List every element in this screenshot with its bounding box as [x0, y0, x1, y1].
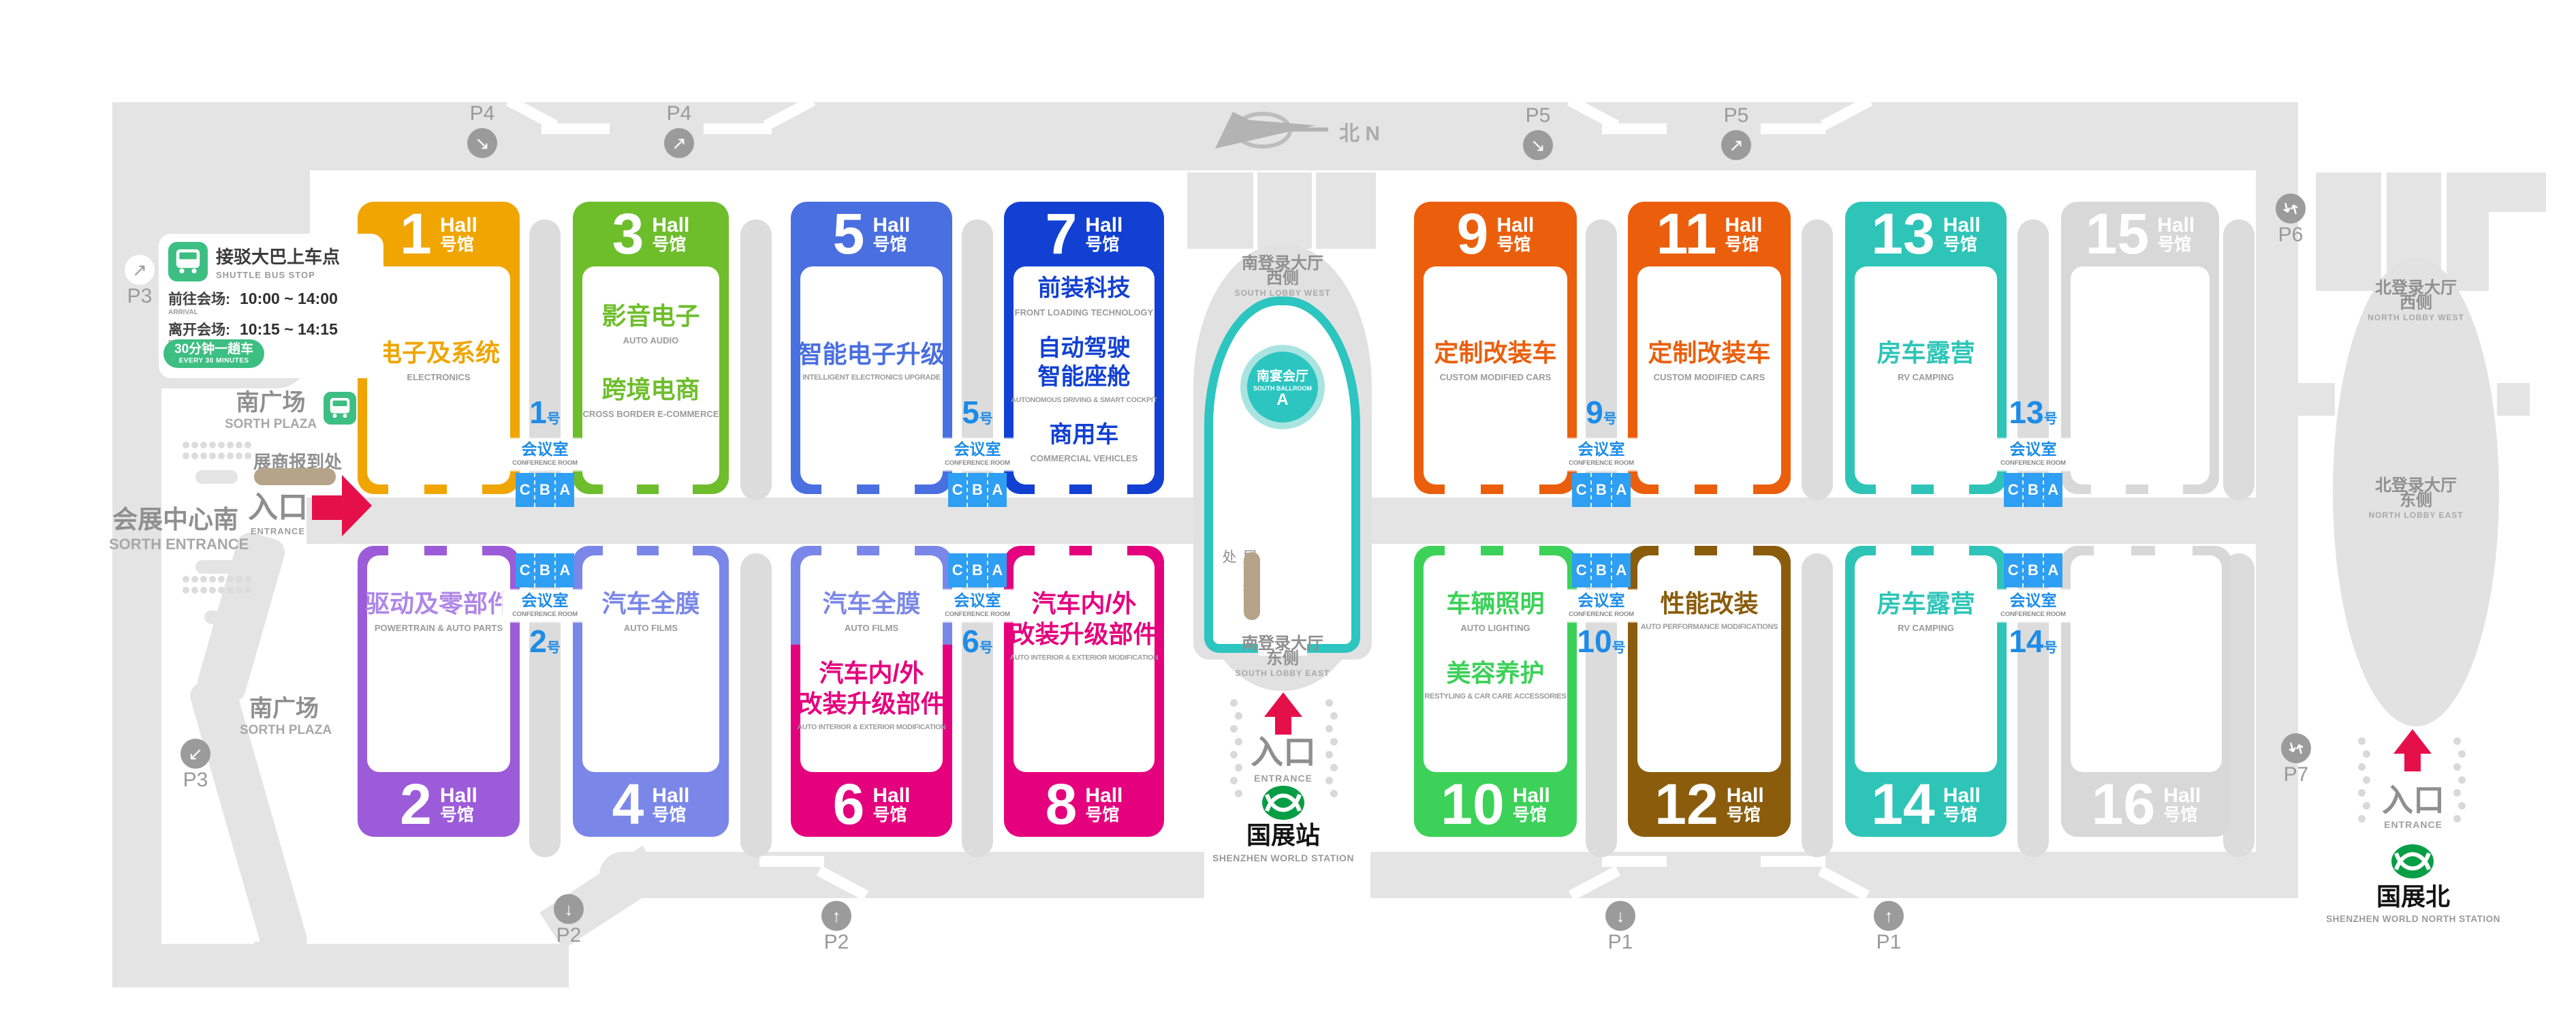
hall-door: [2148, 482, 2183, 494]
south-ballroom-badge[interactable]: 南宴会厅 SOUTH BALLROOM A: [1247, 352, 1318, 422]
hall-suffix-cn: 号馆: [2163, 806, 2201, 824]
hall-5-header: 5 Hall号馆: [791, 202, 952, 266]
hall-4-header: 4 Hall号馆: [573, 772, 729, 837]
conference-room-14[interactable]: CBA 会议室CONFERENCE ROOM 14号: [1975, 553, 2091, 665]
hall-door: [388, 546, 424, 557]
hall-suffix-cn: 号馆: [873, 236, 910, 253]
parking-label: P3: [180, 769, 211, 792]
lobby-wing: [2316, 172, 2381, 291]
category-cn: 电子及系统: [377, 337, 500, 368]
plaza-cn: 南广场: [225, 384, 317, 417]
hall-suffix-cn: 号馆: [873, 806, 910, 824]
south-lobby-east-label: 南登录大厅 东侧 SOUTH LOBBY EAST: [1204, 636, 1361, 678]
category-cn: 智能座舱: [1011, 363, 1157, 392]
lobby-connector: [2294, 383, 2335, 416]
shuttle-title: 接驳大巴上车点: [216, 243, 340, 268]
metro-icon-south: [1261, 785, 1305, 824]
hall-door: [1934, 482, 1969, 494]
hall-number: 8: [1046, 778, 1078, 832]
shuttle-arrive-label: 前往会场:: [168, 288, 230, 309]
hall-floor: [2071, 555, 2222, 772]
south-plaza-lower: 南广场 SORTH PLAZA: [240, 690, 328, 738]
road-middle-east: [1370, 497, 2298, 544]
hall-2-header: 2 Hall号馆: [358, 772, 520, 837]
tree-dots: [183, 452, 251, 459]
conference-number: 9号: [1543, 395, 1659, 436]
hall-number: 15: [2086, 207, 2149, 262]
hall-door: [659, 482, 693, 494]
category-cn: 跨境电商: [582, 374, 719, 405]
hall-13-category: 房车露营 RV CAMPING: [1876, 337, 1975, 382]
shuttle-arrive-time: 10:00 ~ 14:00: [240, 290, 338, 308]
hall-number: 3: [612, 207, 644, 262]
parking-label: P5: [1719, 104, 1753, 127]
hall-number: 1: [400, 207, 432, 262]
hall-4-category: 汽车全膜 AUTO FILMS: [601, 588, 700, 633]
corridor: [1802, 553, 1833, 857]
hall-7-category: 自动驾驶智能座舱AUTONOMOUS DRIVING & SMART COCKP…: [1011, 334, 1157, 404]
parking-label: P6: [2275, 224, 2306, 247]
hall-door: [603, 546, 637, 557]
category-en: AUTO PERFORMANCE MODIFICATIONS: [1641, 623, 1778, 631]
hall-7-category: 前装科技FRONT LOADING TECHNOLOGY: [1015, 274, 1154, 318]
hall-door: [1503, 546, 1539, 557]
hall-door: [1717, 546, 1753, 557]
hall-door: [1035, 482, 1070, 494]
hall-door: [879, 546, 915, 557]
road-notch: [1602, 123, 1667, 134]
conference-number: 2号: [487, 624, 603, 665]
pavement: [195, 470, 238, 484]
category-cn: 房车露营: [1876, 588, 1975, 619]
shuttle-depart-label: 离开会场:: [168, 319, 230, 339]
hall-suffix-cn: 号馆: [1727, 806, 1764, 824]
conference-number: 13号: [1975, 395, 2091, 436]
hall-number: 13: [1871, 207, 1934, 262]
parking-direction-icon: ↗: [125, 255, 155, 285]
category-en: INTELLIGENT ELECTRONICS UPGRADE: [798, 373, 945, 382]
south-entrance-arrow-stem: [1275, 716, 1291, 735]
road-notch: [1761, 123, 1825, 134]
category-en: AUTO INTERIOR & EXTERIOR MODIFICATION: [798, 723, 946, 731]
road-notch: [1602, 856, 1667, 867]
south-lobby-west-label: 南登录大厅 西侧 SOUTH LOBBY WEST: [1197, 256, 1368, 298]
road-middle-west: [307, 497, 1207, 544]
hall-7-category: 商用车COMMERCIAL VEHICLES: [1031, 420, 1138, 464]
category-en: CUSTOM MODIFIED CARS: [1648, 372, 1770, 382]
parking-p3-south-marker[interactable]: ↙ P3: [180, 739, 211, 792]
hall-door: [659, 546, 693, 557]
compass-plane-icon: [1214, 109, 1330, 154]
hall-number: 10: [1441, 778, 1504, 832]
category-cn: 定制改装车: [1434, 337, 1556, 368]
plaza-en: SORTH PLAZA: [225, 417, 317, 432]
category-cn: 前装科技: [1015, 274, 1154, 303]
parking-label: P3: [124, 285, 155, 308]
hall-door: [447, 482, 482, 494]
conference-room-2[interactable]: CBA 会议室CONFERENCE ROOM 2号: [487, 553, 603, 665]
hall-number: 9: [1457, 207, 1489, 262]
hall-door: [821, 546, 857, 557]
hall-door: [1659, 482, 1695, 494]
conference-room-10[interactable]: CBA 会议室CONFERENCE ROOM 10号: [1543, 553, 1659, 665]
hall-9-category: 定制改装车 CUSTOM MODIFIED CARS: [1434, 337, 1556, 382]
road-notch: [541, 123, 610, 134]
lobby-connector: [2497, 383, 2530, 416]
hall-10-category: 车辆照明AUTO LIGHTING: [1446, 588, 1544, 633]
parking-p5-right-marker[interactable]: P5 ↗: [1719, 104, 1753, 160]
pavement: [195, 560, 238, 574]
parking-p1-left-marker[interactable]: ↓ P1: [1603, 901, 1637, 954]
metro-icon-north: [2391, 844, 2434, 882]
parking-label: P2: [552, 924, 586, 947]
parking-p3-west-marker[interactable]: ↗ P3: [124, 255, 155, 308]
category-cn: 改装升级部件: [798, 688, 946, 719]
category-en: ELECTRONICS: [377, 372, 500, 382]
corridor: [740, 553, 772, 857]
hall-suffix-en: Hall: [440, 215, 477, 236]
exhibitor-checkin-desk: [1244, 552, 1260, 620]
category-cn: 自动驾驶: [1011, 334, 1157, 363]
corridor: [1802, 219, 1833, 500]
hall-suffix-cn: 号馆: [1725, 236, 1762, 253]
ballroom-hall-letter: A: [1276, 392, 1288, 408]
conference-sections[interactable]: CBA: [2004, 553, 2062, 587]
shuttle-bus-icon: [168, 242, 208, 281]
conference-number: 14号: [1975, 624, 2091, 665]
category-en: AUTO LIGHTING: [1446, 623, 1544, 633]
hall-suffix-cn: 号馆: [440, 236, 477, 253]
parking-direction-icon: ↗: [1721, 130, 1751, 160]
hall-door: [1445, 546, 1481, 557]
parking-direction-icon: ↗: [664, 128, 694, 158]
category-en: RV CAMPING: [1876, 623, 1975, 633]
hall-number: 4: [612, 778, 644, 832]
corridor: [2223, 219, 2255, 500]
hall-suffix-en: Hall: [873, 785, 910, 807]
hall-16-header: 16 Hall号馆: [2061, 772, 2231, 837]
hall-14-category: 房车露营 RV CAMPING: [1876, 588, 1975, 633]
parking-label: P7: [2280, 763, 2312, 786]
conference-sections[interactable]: CBA: [1572, 553, 1631, 587]
parking-direction-icon: ↘: [1523, 130, 1553, 160]
category-en: AUTO FILMS: [822, 623, 920, 633]
hall-door: [2155, 546, 2193, 557]
parking-label: P4: [662, 102, 696, 125]
conference-room-9[interactable]: 9号 会议室CONFERENCE ROOM CBA: [1543, 395, 1659, 507]
parking-direction-icon: ↘: [467, 128, 497, 158]
lobby-wing: [1187, 172, 1253, 249]
hall-suffix-cn: 号馆: [440, 806, 477, 824]
category-en: AUTO AUDIO: [601, 335, 700, 345]
category-cn: 汽车全膜: [601, 588, 700, 619]
shuttle-title-en: SHUTTLE BUS STOP: [216, 270, 340, 280]
hall-suffix-en: Hall: [1943, 785, 1981, 807]
category-en: COMMERCIAL VEHICLES: [1031, 453, 1138, 463]
hall-suffix-en: Hall: [873, 215, 910, 236]
shuttle-arrive-en: ARRIVAL: [168, 309, 230, 316]
hall-suffix-cn: 号馆: [652, 806, 689, 824]
hall-suffix-cn: 号馆: [1496, 236, 1534, 253]
parking-direction-icon: ↑: [821, 901, 851, 931]
conference-sections[interactable]: CBA: [2004, 473, 2062, 507]
conference-label: 会议室CONFERENCE ROOM: [1991, 590, 2075, 621]
tree-dots: [183, 442, 251, 448]
shenzhen-world-expo-floor-map: 北 N 1 Hall号馆 电子及系统 ELECTRONICS 3 Hall号馆 …: [0, 0, 2576, 1014]
hall-door: [2094, 546, 2131, 557]
hall-10-header: 10 Hall号馆: [1414, 772, 1577, 837]
hall-number: 16: [2092, 778, 2155, 832]
hall-suffix-en: Hall: [1085, 215, 1122, 236]
conference-label: 会议室CONFERENCE ROOM: [503, 590, 587, 621]
conference-number: 6号: [920, 624, 1035, 665]
road-top: [112, 102, 2298, 170]
hall-door: [1092, 482, 1127, 494]
parking-p1-right-marker[interactable]: ↑ P1: [1872, 901, 1906, 954]
shuttle-depart-time: 10:15 ~ 14:15: [240, 320, 338, 339]
category-en: FRONT LOADING TECHNOLOGY: [1015, 307, 1154, 318]
hall-suffix-en: Hall: [652, 215, 689, 236]
category-cn: 房车露营: [1876, 337, 1975, 368]
conference-number: 10号: [1543, 624, 1659, 665]
hall-door: [603, 482, 637, 494]
hall-number: 11: [1656, 207, 1717, 262]
hall-suffix-en: Hall: [2163, 785, 2201, 807]
conference-sections[interactable]: CBA: [516, 473, 574, 507]
hall-6-category: 汽车内/外改装升级部件AUTO INTERIOR & EXTERIOR MODI…: [798, 658, 946, 731]
hall-number: 6: [833, 778, 865, 832]
category-cn: 性能改装: [1641, 588, 1778, 619]
hall-door: [1876, 546, 1911, 557]
hall-suffix-en: Hall: [1943, 215, 1981, 236]
parking-direction-icon: [2272, 190, 2309, 227]
hall-door: [821, 482, 857, 494]
conference-label: 会议室CONFERENCE ROOM: [935, 439, 1020, 470]
hall-6-header: 6 Hall号馆: [791, 772, 952, 837]
parking-p5-left-marker[interactable]: P5 ↘: [1521, 104, 1555, 160]
conference-room-13[interactable]: 13号 会议室CONFERENCE ROOM CBA: [1975, 395, 2091, 507]
conference-label: 会议室CONFERENCE ROOM: [503, 439, 587, 470]
hall-7-header: 7 Hall号馆: [1004, 202, 1164, 266]
hall-15-header: 15 Hall号馆: [2061, 202, 2219, 266]
category-cn: 汽车全膜: [822, 588, 920, 619]
hall-suffix-cn: 号馆: [1943, 806, 1981, 824]
hall-floor: [2071, 266, 2210, 485]
hall-5-category: 智能电子升级 INTELLIGENT ELECTRONICS UPGRADE: [798, 339, 945, 382]
road-notch: [1761, 856, 1825, 867]
hall-door: [2091, 482, 2126, 494]
category-cn: 车辆照明: [1446, 588, 1544, 619]
conference-sections[interactable]: CBA: [1572, 473, 1631, 507]
hall-suffix-en: Hall: [1725, 215, 1762, 236]
north-entrance[interactable]: 入口 ENTRANCE: [2349, 784, 2478, 830]
lobby-wing: [1316, 172, 1376, 249]
hall-suffix-en: Hall: [440, 785, 477, 807]
tree-dots: [183, 576, 251, 583]
hall-door: [1035, 546, 1070, 557]
hall-number: 14: [1871, 778, 1934, 832]
hall-3-category: 跨境电商CROSS BORDER E-COMMERCE: [582, 374, 719, 419]
hall-14-header: 14 Hall号馆: [1845, 772, 2007, 837]
parking-direction-icon: ↓: [554, 894, 584, 924]
hall-door: [1934, 546, 1969, 557]
parking-label: P1: [1872, 931, 1906, 954]
convention-center-south-label: 会展中心南 SORTH ENTRANCE: [109, 499, 242, 553]
hall-11-header: 11 Hall号馆: [1628, 202, 1791, 266]
hall-3-header: 3 Hall号馆: [573, 202, 729, 266]
west-entrance-arrow: [342, 475, 372, 536]
parking-p6-marker[interactable]: P6: [2275, 194, 2306, 247]
hall-12-category: 性能改装 AUTO PERFORMANCE MODIFICATIONS: [1641, 588, 1778, 631]
west-entrance-arrow-stem: [312, 495, 342, 520]
hall-door: [1445, 482, 1481, 494]
conference-label: 会议室CONFERENCE ROOM: [935, 590, 1020, 621]
parking-direction-icon: ↙: [180, 739, 210, 769]
parking-p2-right-marker[interactable]: ↑ P2: [819, 901, 853, 954]
station-shenzhen-world-north[interactable]: 国展北 SHENZHEN WORLD NORTH STATION: [2321, 883, 2505, 924]
hall-number: 12: [1654, 778, 1718, 832]
north-lobby-east-label: 北登录大厅 东侧 NORTH LOBBY EAST: [2336, 478, 2496, 520]
hall-suffix-en: Hall: [1727, 785, 1764, 807]
hall-8-header: 8 Hall号馆: [1004, 772, 1164, 837]
category-cn: 智能电子升级: [798, 339, 945, 369]
hall-suffix-en: Hall: [1513, 785, 1550, 807]
conference-number: 5号: [920, 395, 1035, 436]
hall-door: [388, 482, 424, 494]
road-plaza-tip: [253, 942, 294, 973]
hall-door: [1503, 482, 1539, 494]
hall-number: 5: [833, 207, 865, 262]
hall-12-header: 12 Hall号馆: [1628, 772, 1791, 837]
hall-suffix-en: Hall: [2157, 215, 2195, 236]
hall-number: 7: [1046, 207, 1078, 262]
hall-suffix-en: Hall: [1496, 215, 1534, 236]
hall-9-header: 9 Hall号馆: [1414, 202, 1577, 266]
north-entrance-arrow-stem: [2404, 752, 2421, 771]
parking-p2-left-marker[interactable]: ↓ P2: [552, 894, 586, 947]
category-en: RV CAMPING: [1876, 372, 1975, 382]
hall-suffix-cn: 号馆: [652, 236, 689, 253]
parking-direction-icon: ↓: [1605, 901, 1635, 931]
road-bottom-west: [599, 852, 1204, 898]
hall-11-category: 定制改装车 CUSTOM MODIFIED CARS: [1648, 337, 1770, 382]
conference-room-6[interactable]: CBA 会议室CONFERENCE ROOM 6号: [920, 553, 1035, 665]
south-entrance-arrow: [1264, 692, 1302, 717]
south-entrance[interactable]: 入口 ENTRANCE: [1219, 736, 1347, 784]
hall-suffix-cn: 号馆: [2157, 236, 2195, 253]
parking-p4-left-marker[interactable]: P4 ↘: [465, 102, 499, 158]
hall-suffix-en: Hall: [652, 785, 689, 807]
hall-suffix-cn: 号馆: [1943, 236, 1981, 253]
parking-label: P2: [819, 931, 853, 954]
north-lobby-west-label: 北登录大厅 西侧 NORTH LOBBY WEST: [2336, 281, 2496, 322]
parking-p7-marker[interactable]: P7: [2280, 733, 2312, 786]
category-en: CUSTOM MODIFIED CARS: [1434, 372, 1556, 382]
ballroom-cn: 南宴会厅: [1257, 366, 1308, 384]
hall-1-category: 电子及系统 ELECTRONICS: [377, 337, 500, 382]
conference-number: 1号: [487, 395, 603, 436]
south-plaza-upper: 南广场 SORTH PLAZA: [225, 384, 356, 432]
parking-label: P4: [465, 102, 499, 125]
tree-dots: [183, 587, 251, 594]
road-notch: [759, 856, 824, 867]
hall-door: [447, 546, 482, 557]
parking-label: P5: [1521, 104, 1555, 127]
hall-3-category: 影音电子AUTO AUDIO: [601, 301, 700, 345]
category-en: CROSS BORDER E-COMMERCE: [582, 409, 719, 419]
road-lower-left: [112, 944, 569, 987]
exhibitor-checkin-desk-west: [254, 468, 336, 485]
hall-suffix-en: Hall: [1085, 785, 1122, 807]
conference-sections[interactable]: CBA: [948, 473, 1007, 507]
conference-room-1[interactable]: 1号 会议室CONFERENCE ROOM CBA: [487, 395, 603, 507]
category-cn: 影音电子: [601, 301, 700, 331]
station-shenzhen-world[interactable]: 国展站 SHENZHEN WORLD STATION: [1197, 822, 1369, 863]
compass-label: 北 N: [1339, 117, 1380, 147]
conference-label: 会议室CONFERENCE ROOM: [1559, 590, 1644, 621]
parking-label: P1: [1603, 931, 1637, 954]
hall-6-category: 汽车全膜AUTO FILMS: [822, 588, 920, 633]
hall-door: [879, 482, 915, 494]
hall-door: [1717, 482, 1753, 494]
hall-door: [1092, 546, 1127, 557]
conference-sections[interactable]: CBA: [516, 553, 574, 587]
conference-room-5[interactable]: 5号 会议室CONFERENCE ROOM CBA: [920, 395, 1035, 507]
corridor: [740, 219, 772, 500]
hall-suffix-cn: 号馆: [1085, 236, 1122, 253]
compass-north-indicator: 北 N: [1214, 109, 1380, 154]
bus-stop-icon: [324, 392, 356, 425]
hall-suffix-cn: 号馆: [1085, 806, 1122, 824]
hall-suffix-cn: 号馆: [1513, 806, 1550, 824]
road-notch: [704, 123, 772, 134]
conference-label: 会议室CONFERENCE ROOM: [1991, 439, 2075, 470]
parking-direction-icon: ↑: [1874, 901, 1904, 931]
parking-p4-right-marker[interactable]: P4 ↗: [662, 102, 696, 158]
lobby-wing: [1257, 172, 1312, 249]
west-entrance[interactable]: 入口 ENTRANCE: [245, 492, 311, 536]
hall-door: [1659, 546, 1695, 557]
category-en: RESTYLING & CAR CARE ACCESSORIES: [1424, 692, 1566, 701]
category-cn: 商用车: [1031, 420, 1138, 450]
hall-door: [1876, 482, 1911, 494]
category-cn: 定制改装车: [1648, 337, 1770, 368]
shuttle-frequency-badge: 30分钟一趟车 EVERY 30 MINUTES: [163, 339, 264, 368]
conference-label: 会议室CONFERENCE ROOM: [1559, 439, 1644, 470]
hall-13-header: 13 Hall号馆: [1845, 202, 2007, 266]
conference-sections[interactable]: CBA: [948, 553, 1007, 587]
category-en: AUTO FILMS: [601, 623, 700, 633]
hall-number: 2: [400, 778, 432, 832]
north-entrance-arrow: [2393, 729, 2432, 754]
parking-direction-icon: [2278, 730, 2314, 767]
lobby-wing: [2447, 172, 2546, 212]
